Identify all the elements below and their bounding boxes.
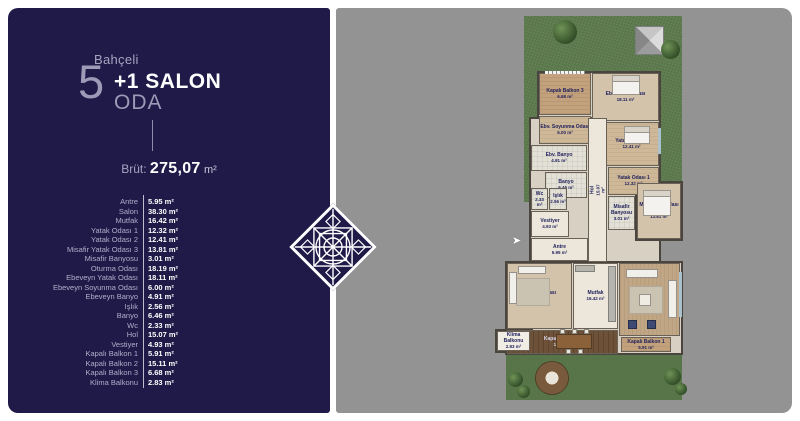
bush-icon bbox=[553, 20, 577, 44]
sofa bbox=[509, 272, 517, 304]
plan-room-ebeveyn-banyo: Ebv. Banyo4.91 m² bbox=[531, 145, 587, 171]
list-item: Ebeveyn Banyo4.91 m² bbox=[8, 292, 330, 302]
room-area: 18.19 m² bbox=[148, 264, 178, 273]
list-item: Kapalı Balkon 15.91 m² bbox=[8, 349, 330, 359]
rug bbox=[516, 278, 550, 306]
bed bbox=[624, 126, 650, 144]
room-name: Oturma Odası bbox=[8, 264, 138, 273]
gross-area-label: Brüt: bbox=[121, 162, 146, 176]
gross-area-value: 275,07 bbox=[150, 160, 201, 177]
bush-icon bbox=[517, 385, 530, 398]
window bbox=[658, 128, 661, 154]
gross-area: Brüt: 275,07 m² bbox=[8, 160, 330, 178]
kitchen-counter bbox=[575, 265, 595, 272]
bed bbox=[612, 75, 640, 95]
room-area: 12.32 m² bbox=[148, 226, 178, 235]
list-item: Yatak Odası 112.32 m² bbox=[8, 226, 330, 236]
plan-room-wc: Wc2.33 m² bbox=[531, 188, 548, 210]
chair bbox=[560, 329, 565, 334]
chair bbox=[566, 349, 571, 354]
room-name: Wc bbox=[8, 321, 138, 330]
plan-room-vestiyer: Vestiyer4.93 m² bbox=[531, 211, 569, 237]
room-area: 4.93 m² bbox=[148, 340, 174, 349]
list-item: Ebeveyn Soyunma Odası6.00 m² bbox=[8, 283, 330, 293]
room-area: 12.41 m² bbox=[148, 235, 178, 244]
entrance-arrow-icon: ➤ bbox=[512, 236, 521, 247]
room-name: Ebeveyn Yatak Odası bbox=[8, 273, 138, 282]
list-item: Salon38.30 m² bbox=[8, 207, 330, 217]
room-area-list: Antre5.95 m² Salon38.30 m² Mutfak16.42 m… bbox=[8, 197, 330, 387]
bush-icon bbox=[675, 383, 687, 395]
list-item: Vestiyer4.93 m² bbox=[8, 340, 330, 350]
chair bbox=[584, 329, 589, 334]
room-area: 4.91 m² bbox=[148, 292, 174, 301]
room-area: 5.91 m² bbox=[148, 349, 174, 358]
list-item: Banyo6.46 m² bbox=[8, 311, 330, 321]
oda-label: ODA bbox=[114, 91, 163, 115]
room-name: Antre bbox=[8, 197, 138, 206]
room-name: Yatak Odası 2 bbox=[8, 235, 138, 244]
dining-table bbox=[556, 334, 592, 349]
room-name: Ebeveyn Soyunma Odası bbox=[8, 283, 138, 292]
room-area: 2.33 m² bbox=[148, 321, 174, 330]
sofa bbox=[518, 266, 546, 274]
room-name: Klima Balkonu bbox=[8, 378, 138, 387]
room-name: Işlık bbox=[8, 302, 138, 311]
list-item: Misafir Yatak Odası 313.81 m² bbox=[8, 245, 330, 255]
plan-room-hol: Hol15.07 m² bbox=[588, 118, 607, 262]
list-item: Kapalı Balkon 36.68 m² bbox=[8, 368, 330, 378]
room-area: 18.11 m² bbox=[148, 273, 178, 282]
list-item: Antre5.95 m² bbox=[8, 197, 330, 207]
room-area: 6.00 m² bbox=[148, 283, 174, 292]
list-item: Misafir Banyosu3.01 m² bbox=[8, 254, 330, 264]
bush-icon bbox=[661, 40, 680, 59]
room-area: 13.81 m² bbox=[148, 245, 178, 254]
info-panel: Bahçeli 5 +1 SALON ODA Brüt: 275,07 m² A… bbox=[8, 8, 330, 413]
room-area: 15.07 m² bbox=[148, 330, 178, 339]
room-name: Yatak Odası 1 bbox=[8, 226, 138, 235]
room-name: Salon bbox=[8, 207, 138, 216]
plan-room-misafir-banyosu: Misafir Banyosu3.01 m² bbox=[608, 196, 635, 230]
armchair bbox=[628, 320, 637, 329]
room-name: Mutfak bbox=[8, 216, 138, 225]
room-area: 3.01 m² bbox=[148, 254, 174, 263]
rooms-count: 5 bbox=[78, 58, 104, 105]
room-name: Misafir Banyosu bbox=[8, 254, 138, 263]
sofa bbox=[626, 269, 658, 278]
chair bbox=[578, 349, 583, 354]
plan-room-klima-balkonu: Klima Balkonu2.83 m² bbox=[497, 331, 530, 351]
plan-room-kapali-balkon-1: Kapalı Balkon 15.91 m² bbox=[621, 337, 671, 352]
kitchen-counter bbox=[608, 266, 616, 322]
room-area: 6.46 m² bbox=[148, 311, 174, 320]
sofa bbox=[668, 280, 677, 318]
list-item: Mutfak16.42 m² bbox=[8, 216, 330, 226]
bed bbox=[643, 190, 671, 216]
list-item: Hol15.07 m² bbox=[8, 330, 330, 340]
brochure-page: Bahçeli 5 +1 SALON ODA Brüt: 275,07 m² A… bbox=[0, 0, 800, 421]
coffee-table bbox=[639, 294, 651, 306]
room-area: 6.68 m² bbox=[148, 368, 174, 377]
room-name: Vestiyer bbox=[8, 340, 138, 349]
window bbox=[679, 272, 682, 317]
room-area: 38.30 m² bbox=[148, 207, 178, 216]
room-name: Misafir Yatak Odası 3 bbox=[8, 245, 138, 254]
list-item: Wc2.33 m² bbox=[8, 321, 330, 331]
list-item: Kapalı Balkon 215.11 m² bbox=[8, 359, 330, 369]
plan-room-islik: Işlık2.56 m² bbox=[549, 188, 567, 210]
chair bbox=[572, 329, 577, 334]
gross-area-unit: m² bbox=[204, 164, 217, 176]
list-item: Oturma Odası18.19 m² bbox=[8, 264, 330, 274]
room-area: 5.95 m² bbox=[148, 197, 174, 206]
room-area: 15.11 m² bbox=[148, 359, 178, 368]
room-area: 2.83 m² bbox=[148, 378, 174, 387]
room-name: Kapalı Balkon 2 bbox=[8, 359, 138, 368]
room-name: Kapalı Balkon 1 bbox=[8, 349, 138, 358]
room-name: Hol bbox=[8, 330, 138, 339]
room-name: Ebeveyn Banyo bbox=[8, 292, 138, 301]
plan-room-antre: Antre5.95 m² bbox=[531, 238, 588, 261]
room-area: 16.42 m² bbox=[148, 216, 178, 225]
skylight-pyramid bbox=[636, 27, 663, 54]
header-divider bbox=[152, 120, 153, 151]
list-item: Yatak Odası 212.41 m² bbox=[8, 235, 330, 245]
list-item: Ebeveyn Yatak Odası18.11 m² bbox=[8, 273, 330, 283]
window bbox=[545, 71, 585, 74]
garden-bottom bbox=[506, 352, 682, 400]
list-item: Klima Balkonu2.83 m² bbox=[8, 378, 330, 388]
room-name: Banyo bbox=[8, 311, 138, 320]
plan-room-kapali-balkon-3: Kapalı Balkon 36.68 m² bbox=[539, 73, 591, 115]
garden-table bbox=[536, 362, 568, 394]
room-name: Kapalı Balkon 3 bbox=[8, 368, 138, 377]
room-area: 2.56 m² bbox=[148, 302, 174, 311]
armchair bbox=[647, 320, 656, 329]
list-item: Işlık2.56 m² bbox=[8, 302, 330, 312]
plan-room-ebeveyn-soyunma: Ebv. Soyunma Odası6.00 m² bbox=[539, 116, 591, 144]
